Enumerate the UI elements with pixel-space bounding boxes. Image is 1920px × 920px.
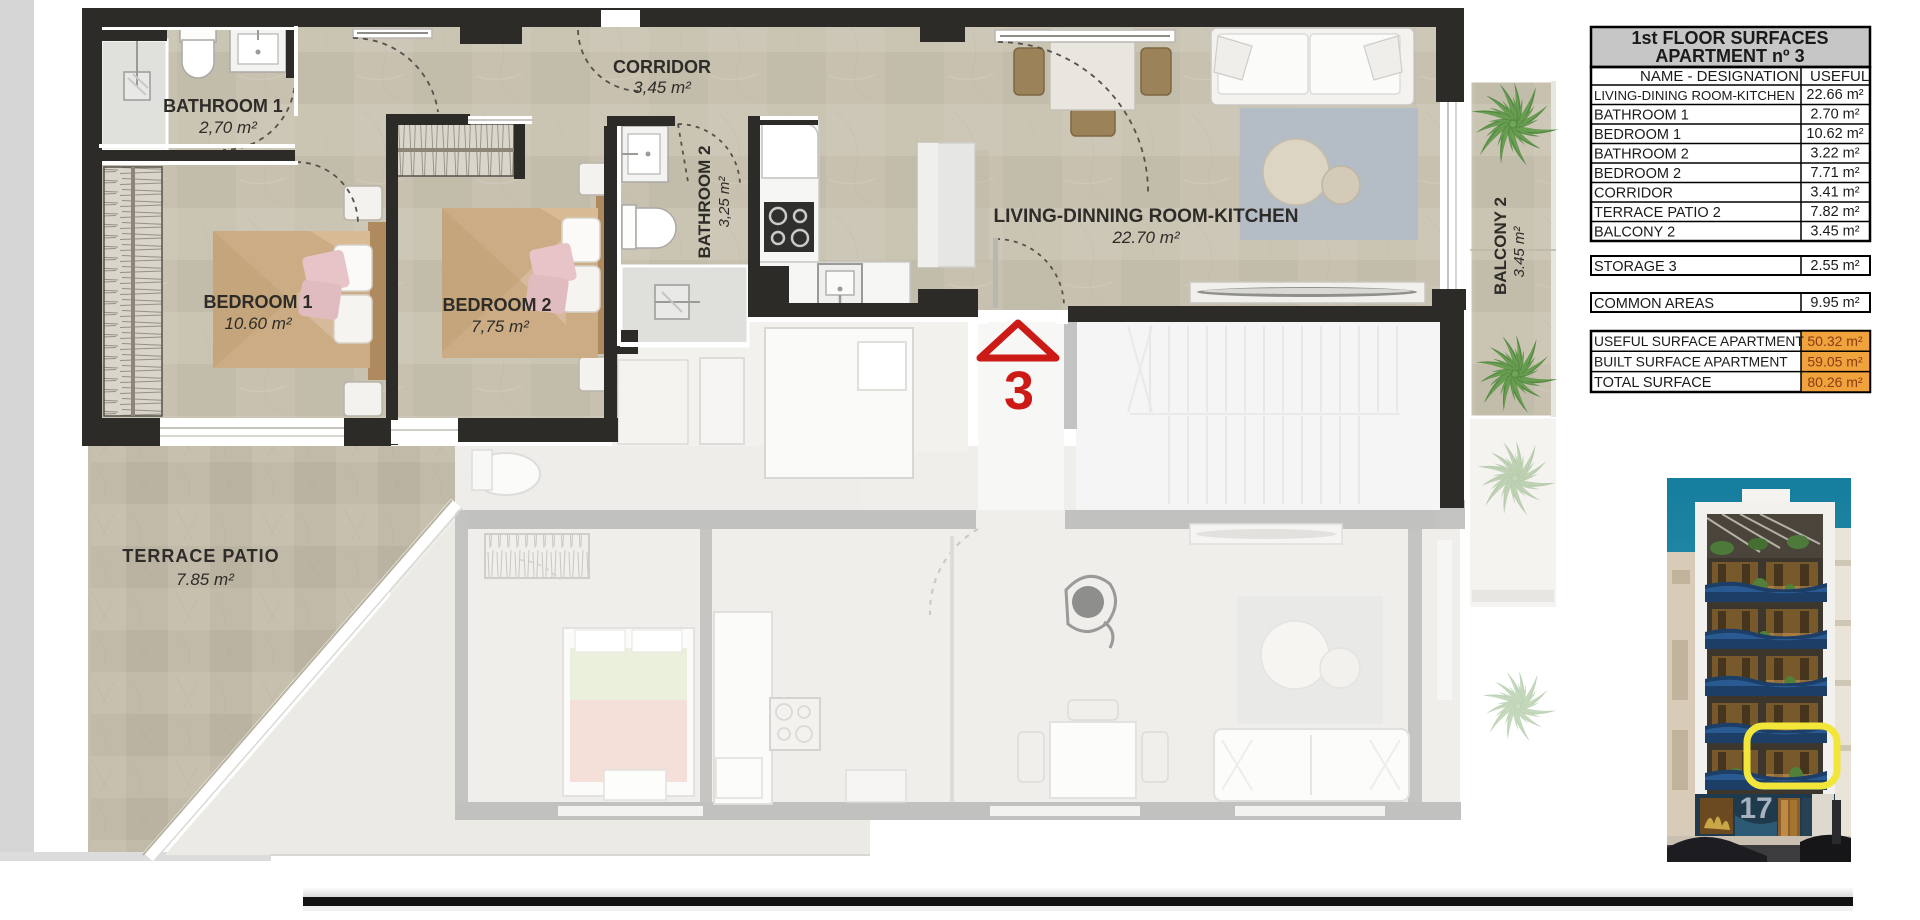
svg-text:BATHROOM 1: BATHROOM 1 bbox=[1594, 108, 1689, 124]
svg-text:10.60 m²: 10.60 m² bbox=[224, 314, 292, 333]
svg-text:3.22 m²: 3.22 m² bbox=[1810, 146, 1859, 162]
svg-text:7.71 m²: 7.71 m² bbox=[1810, 165, 1859, 181]
svg-text:BEDROOM 1: BEDROOM 1 bbox=[203, 292, 312, 312]
svg-text:APARTMENT nº 3: APARTMENT nº 3 bbox=[1655, 46, 1804, 66]
svg-text:3.41 m²: 3.41 m² bbox=[1810, 185, 1859, 201]
svg-text:TERRACE PATIO: TERRACE PATIO bbox=[122, 546, 279, 566]
svg-text:BEDROOM 2: BEDROOM 2 bbox=[1594, 166, 1681, 182]
svg-text:BEDROOM 2: BEDROOM 2 bbox=[442, 295, 551, 315]
svg-text:2.70 m²: 2.70 m² bbox=[1810, 107, 1859, 123]
svg-text:22.70 m²: 22.70 m² bbox=[1111, 228, 1180, 247]
svg-text:9.95 m²: 9.95 m² bbox=[1810, 295, 1859, 311]
svg-text:BALCONY 2: BALCONY 2 bbox=[1491, 197, 1510, 295]
svg-text:7,75 m²: 7,75 m² bbox=[471, 317, 530, 336]
svg-text:3: 3 bbox=[1004, 361, 1034, 421]
svg-text:BUILT SURFACE APARTMENT: BUILT SURFACE APARTMENT bbox=[1594, 355, 1788, 370]
svg-text:COMMON AREAS: COMMON AREAS bbox=[1594, 296, 1714, 312]
svg-text:CORRIDOR: CORRIDOR bbox=[613, 57, 711, 77]
svg-text:TOTAL SURFACE: TOTAL SURFACE bbox=[1594, 375, 1712, 391]
svg-text:BATHROOM 1: BATHROOM 1 bbox=[163, 96, 283, 116]
svg-text:USEFUL: USEFUL bbox=[1810, 68, 1869, 85]
svg-text:BALCONY 2: BALCONY 2 bbox=[1594, 225, 1675, 241]
svg-text:3.45 m²: 3.45 m² bbox=[1810, 224, 1859, 240]
svg-text:1st FLOOR SURFACES: 1st FLOOR SURFACES bbox=[1631, 28, 1828, 48]
svg-text:2.55 m²: 2.55 m² bbox=[1810, 258, 1859, 274]
svg-text:80.26 m²: 80.26 m² bbox=[1807, 374, 1863, 390]
svg-text:BATHROOM 2: BATHROOM 2 bbox=[695, 145, 714, 258]
svg-text:TERRACE PATIO 2: TERRACE PATIO 2 bbox=[1594, 205, 1721, 221]
svg-text:BEDROOM 1: BEDROOM 1 bbox=[1594, 127, 1681, 143]
svg-text:3,45 m²: 3,45 m² bbox=[633, 78, 692, 97]
svg-text:50.32 m²: 50.32 m² bbox=[1807, 333, 1863, 349]
svg-text:CORRIDOR: CORRIDOR bbox=[1594, 186, 1673, 202]
svg-text:LIVING-DINING ROOM-KITCHEN: LIVING-DINING ROOM-KITCHEN bbox=[1594, 88, 1795, 103]
svg-text:LIVING-DINNING ROOM-KITCHEN: LIVING-DINNING ROOM-KITCHEN bbox=[993, 206, 1298, 227]
svg-text:NAME - DESIGNATION: NAME - DESIGNATION bbox=[1640, 68, 1799, 85]
svg-text:BATHROOM 2: BATHROOM 2 bbox=[1594, 147, 1689, 163]
svg-text:3,25 m²: 3,25 m² bbox=[716, 176, 733, 228]
svg-text:STORAGE 3: STORAGE 3 bbox=[1594, 259, 1677, 275]
svg-text:2,70 m²: 2,70 m² bbox=[198, 118, 258, 137]
svg-text:10.62 m²: 10.62 m² bbox=[1806, 126, 1863, 142]
svg-text:17: 17 bbox=[1739, 792, 1772, 825]
svg-text:22.66 m²: 22.66 m² bbox=[1806, 87, 1863, 103]
svg-text:7.85 m²: 7.85 m² bbox=[176, 570, 235, 589]
svg-text:59.05 m²: 59.05 m² bbox=[1807, 354, 1863, 370]
svg-text:7.82 m²: 7.82 m² bbox=[1810, 204, 1859, 220]
svg-text:3.45 m²: 3.45 m² bbox=[1511, 226, 1528, 278]
svg-text:USEFUL SURFACE APARTMENT: USEFUL SURFACE APARTMENT bbox=[1594, 334, 1804, 349]
